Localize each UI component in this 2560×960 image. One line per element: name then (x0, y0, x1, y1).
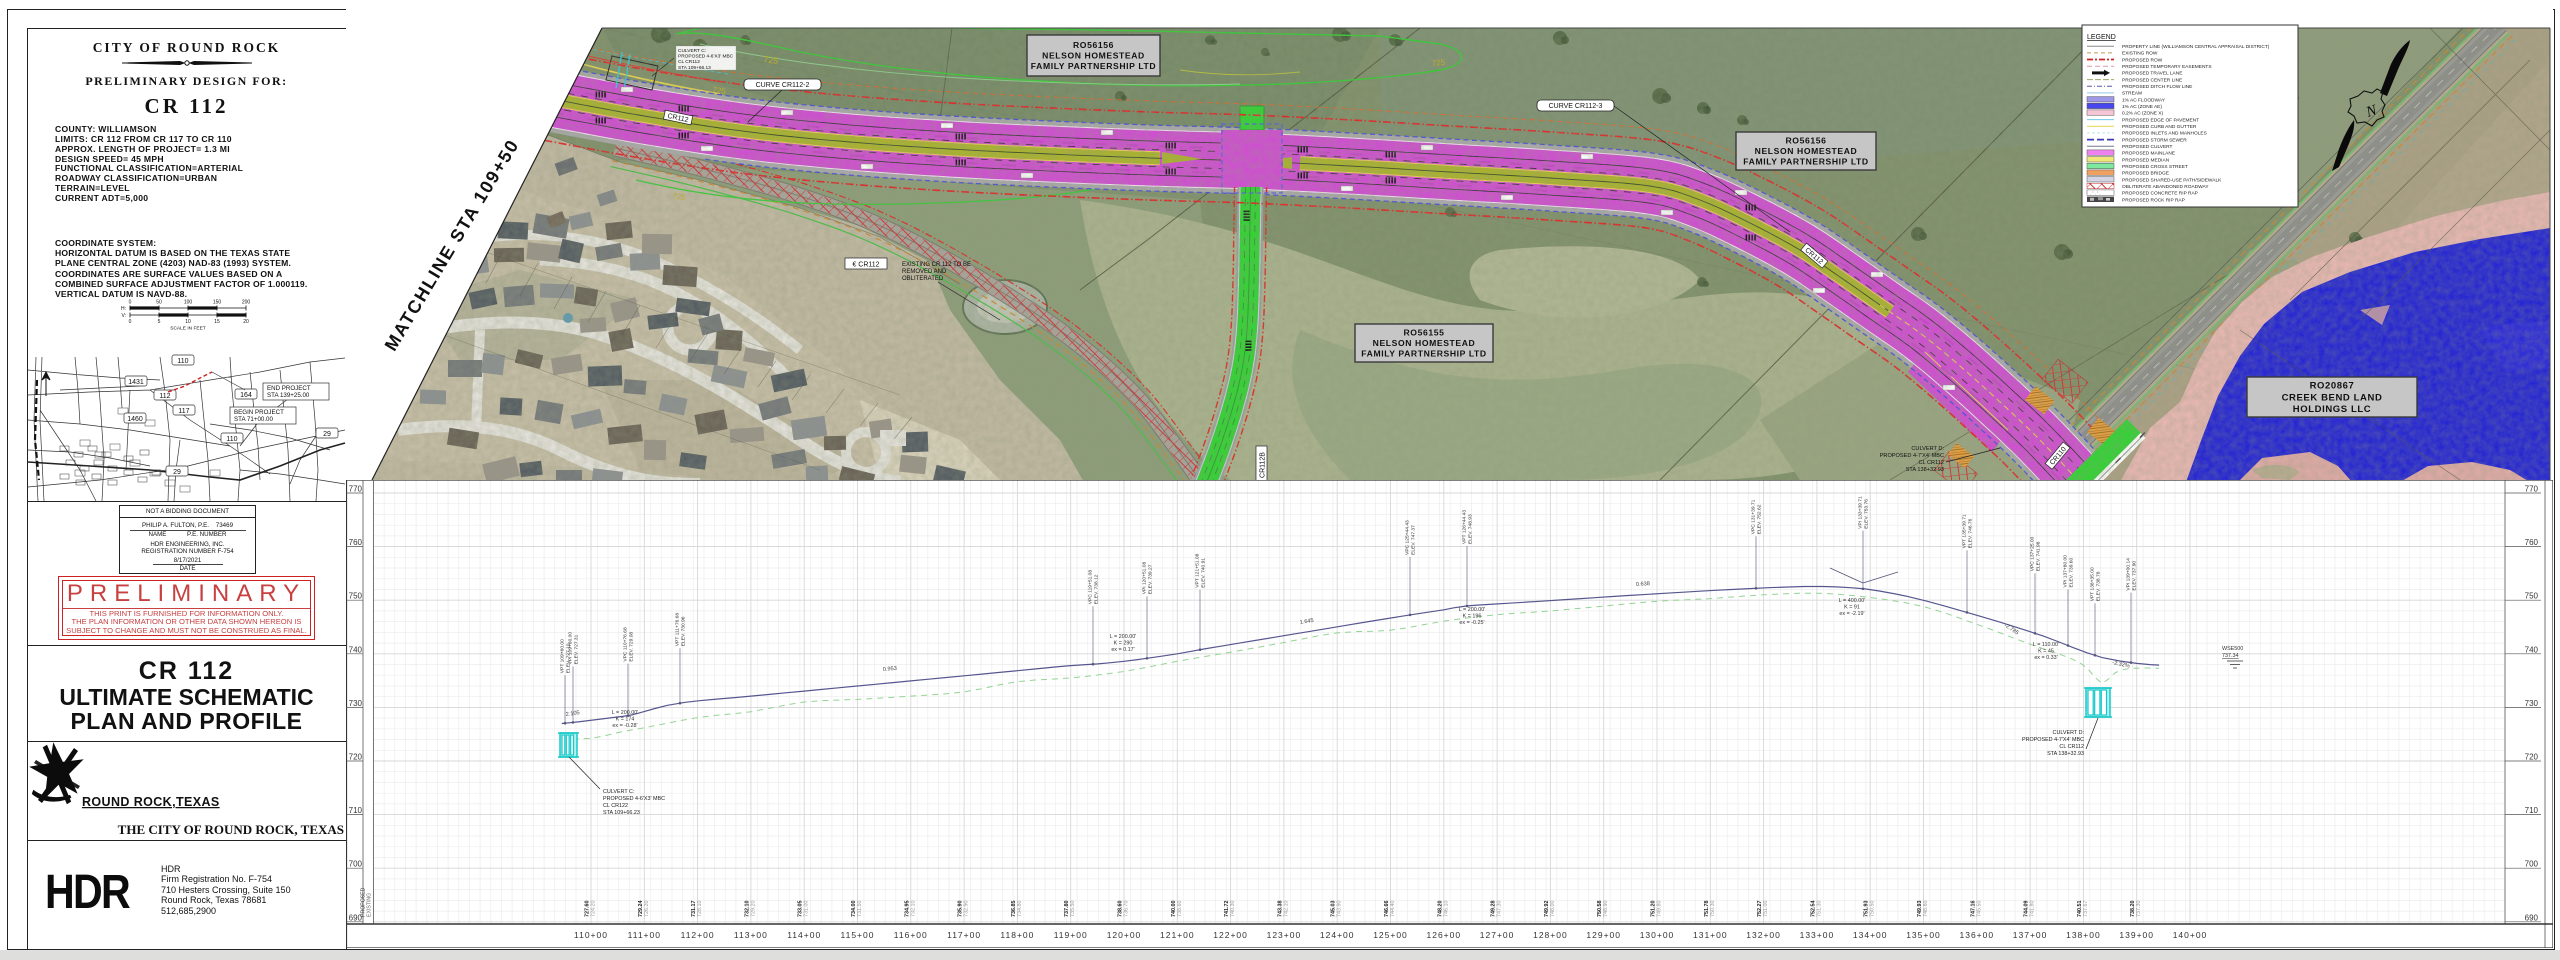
svg-text:720: 720 (2525, 753, 2539, 762)
svg-text:VPC 131+39.71: VPC 131+39.71 (1751, 499, 1757, 534)
svg-text:730: 730 (2525, 699, 2539, 708)
svg-text:VPC 137+25.00: VPC 137+25.00 (2030, 536, 2036, 571)
svg-text:124+00: 124+00 (1320, 930, 1355, 940)
svg-text:K = 174: K = 174 (616, 717, 635, 723)
svg-text:NELSON HOMESTEAD: NELSON HOMESTEAD (1755, 146, 1858, 156)
svg-text:. ˚ . ˚ .: . ˚ . ˚ . (2090, 190, 2100, 195)
svg-text:138+00: 138+00 (2066, 930, 2101, 940)
svg-text:740: 740 (2525, 645, 2539, 654)
svg-text:RO20867: RO20867 (2310, 381, 2355, 392)
svg-text:114+00: 114+00 (787, 930, 821, 940)
svg-text:741.80: 741.80 (2030, 901, 2036, 918)
svg-text:CL CR112: CL CR112 (2059, 744, 2084, 750)
svg-text:737.34: 737.34 (2222, 653, 2239, 659)
svg-text:ELEV. 740.91: ELEV. 740.91 (1200, 558, 1206, 588)
svg-text:VPT 111+76.68: VPT 111+76.68 (675, 613, 681, 647)
svg-text:EXISTING CR 112 TO BE: EXISTING CR 112 TO BE (902, 262, 971, 268)
svg-text:140+00: 140+00 (2173, 930, 2208, 940)
svg-text:746.10: 746.10 (1443, 901, 1449, 918)
svg-text:K = 91: K = 91 (1844, 605, 1860, 611)
svg-text:PROPOSED TRAVEL LANE: PROPOSED TRAVEL LANE (2122, 71, 2182, 77)
svg-text:ex = 0.17': ex = 0.17' (1111, 647, 1134, 653)
svg-text:RO56156: RO56156 (1786, 135, 1827, 145)
svg-text:740: 740 (349, 645, 363, 654)
svg-text:CREEK BEND LAND: CREEK BEND LAND (2282, 392, 2383, 403)
svg-text:VPI 109+80.00: VPI 109+80.00 (568, 632, 574, 665)
svg-text:ELEV. 738.78: ELEV. 738.78 (2095, 571, 2101, 601)
svg-text:730: 730 (349, 699, 363, 708)
svg-text:CURVE CR112-2: CURVE CR112-2 (756, 82, 810, 89)
svg-text:29: 29 (323, 431, 331, 438)
svg-text:PROPOSED EDGE OF PAVEMENT: PROPOSED EDGE OF PAVEMENT (2122, 117, 2199, 123)
svg-text:748.90: 748.90 (1603, 901, 1609, 918)
svg-text:119+00: 119+00 (1054, 930, 1088, 940)
svg-text:1% AC (ZONE AE): 1% AC (ZONE AE) (2122, 104, 2162, 110)
svg-text:720: 720 (349, 753, 363, 762)
svg-text:131+00: 131+00 (1693, 930, 1728, 940)
svg-text:END PROJECT: END PROJECT (267, 385, 311, 392)
svg-text:760: 760 (2525, 538, 2539, 547)
svg-text:117: 117 (178, 408, 189, 415)
svg-text:VPI 120+51.08: VPI 120+51.08 (1142, 562, 1148, 595)
svg-text:734.80: 734.80 (1017, 901, 1023, 918)
svg-text:VPT 135+39.71: VPT 135+39.71 (1962, 514, 1968, 548)
svg-text:PROPOSED CROSS STREET: PROPOSED CROSS STREET (2122, 164, 2188, 170)
svg-text:VPT 126+44.43: VPT 126+44.43 (1462, 510, 1468, 544)
svg-text:PROPOSED CENTER LINE: PROPOSED CENTER LINE (2122, 77, 2182, 83)
svg-text:120+00: 120+00 (1107, 930, 1142, 940)
svg-text:118+00: 118+00 (1000, 930, 1034, 940)
svg-text:700: 700 (2525, 860, 2539, 869)
svg-text:CR112B: CR112B (1260, 452, 1267, 478)
svg-text:ELEV. 746.76: ELEV. 746.76 (1967, 518, 1973, 548)
svg-text:123+00: 123+00 (1267, 930, 1302, 940)
svg-text:ELEV. 739.27: ELEV. 739.27 (1147, 564, 1153, 594)
svg-text:29: 29 (173, 469, 181, 476)
svg-text:750: 750 (349, 592, 363, 601)
svg-text:735.50: 735.50 (1070, 901, 1076, 918)
svg-text:127+00: 127+00 (1480, 930, 1515, 940)
svg-text:117+00: 117+00 (947, 930, 981, 940)
svg-text:REMOVED AND: REMOVED AND (902, 269, 947, 275)
svg-text:ex = 0.33': ex = 0.33' (2034, 655, 2057, 661)
svg-text:FAMILY PARTNERSHIP LTD: FAMILY PARTNERSHIP LTD (1031, 61, 1156, 71)
svg-text:731.00: 731.00 (804, 901, 810, 918)
svg-text:134+00: 134+00 (1853, 930, 1888, 940)
svg-text:100: 100 (184, 300, 193, 306)
svg-text:110: 110 (177, 358, 188, 365)
svg-text:STA 138+32.93: STA 138+32.93 (1906, 467, 1944, 473)
svg-text:133+00: 133+00 (1800, 930, 1835, 940)
svg-text:164: 164 (240, 392, 252, 399)
svg-text:ELEV. 748.93: ELEV. 748.93 (1467, 514, 1473, 544)
svg-text:VPT 121+51.08: VPT 121+51.08 (1195, 553, 1201, 587)
svg-text:751.30: 751.30 (1816, 901, 1822, 918)
svg-text:PROPOSED BRIDGE: PROPOSED BRIDGE (2122, 171, 2169, 177)
svg-text:CL CR112: CL CR112 (1919, 460, 1945, 466)
svg-text:STA 71+00.00: STA 71+00.00 (234, 416, 273, 423)
svg-text:750.30: 750.30 (1710, 901, 1716, 918)
svg-text:HOLDINGS LLC: HOLDINGS LLC (2293, 404, 2371, 415)
svg-text:PROPOSED CULVERT: PROPOSED CULVERT (2122, 144, 2173, 150)
svg-text:PROPOSED MAINLANE: PROPOSED MAINLANE (2122, 151, 2175, 157)
svg-text:PROPOSED SHARED-USE PATH/SIDEW: PROPOSED SHARED-USE PATH/SIDEWALK (2122, 177, 2222, 183)
svg-text:740.30: 740.30 (1230, 901, 1236, 918)
svg-text:0: 0 (129, 300, 132, 306)
svg-text:CURVE CR112-3: CURVE CR112-3 (1549, 103, 1603, 110)
svg-text:L = 110.00': L = 110.00' (2033, 642, 2059, 648)
svg-text:0.953: 0.953 (883, 666, 897, 673)
svg-text:744.40: 744.40 (1390, 901, 1396, 918)
svg-text:743.90: 743.90 (1337, 901, 1343, 918)
svg-text:PROPERTY LINE (WILLIAMSON CENT: PROPERTY LINE (WILLIAMSON CENTRAL APPRAI… (2122, 44, 2270, 50)
svg-text:112+00: 112+00 (681, 930, 715, 940)
svg-text:132+00: 132+00 (1746, 930, 1781, 940)
svg-text:L = 200.00': L = 200.00' (612, 710, 638, 716)
svg-text:20: 20 (243, 319, 249, 325)
svg-text:€ CR112: € CR112 (852, 262, 879, 269)
svg-text:PROPOSED INLETS AND MANHOLES: PROPOSED INLETS AND MANHOLES (2122, 131, 2207, 137)
svg-text:L = 200.00': L = 200.00' (1459, 607, 1485, 613)
svg-text:751.00: 751.00 (1763, 901, 1769, 918)
svg-text:CULVERT C:: CULVERT C: (678, 48, 706, 54)
svg-text:SCALE IN FEET: SCALE IN FEET (170, 326, 206, 332)
svg-text:1% AC FLOODWAY: 1% AC FLOODWAY (2122, 97, 2166, 103)
svg-text:121+00: 121+00 (1160, 930, 1195, 940)
svg-text:PROPOSED 4-6'X3' MBC: PROPOSED 4-6'X3' MBC (603, 796, 665, 802)
svg-text:VPC 119+51.08: VPC 119+51.08 (1088, 570, 1094, 605)
svg-text:750: 750 (2525, 592, 2539, 601)
svg-text:ELEV. 752.62: ELEV. 752.62 (1756, 504, 1762, 534)
svg-text:PROPOSED TEMPORARY EASEMENTS: PROPOSED TEMPORARY EASEMENTS (2122, 64, 2212, 70)
svg-text:749.80: 749.80 (1657, 901, 1663, 918)
svg-text:ELEV. 737.90: ELEV. 737.90 (2131, 561, 2137, 591)
svg-text:0.2% AC (ZONE X): 0.2% AC (ZONE X) (2122, 111, 2163, 117)
svg-text:PROPOSED DITCH FLOW LINE: PROPOSED DITCH FLOW LINE (2122, 84, 2192, 90)
svg-text:710: 710 (2525, 806, 2539, 815)
svg-text:RO56155: RO56155 (1404, 327, 1445, 337)
svg-text:ELEV. 730.96: ELEV. 730.96 (680, 616, 686, 646)
svg-text:736.70: 736.70 (1124, 901, 1130, 918)
svg-text:STA 109+66.13: STA 109+66.13 (678, 65, 711, 71)
svg-text:200: 200 (242, 300, 251, 306)
svg-text:748.00: 748.00 (1550, 901, 1556, 918)
svg-text:50: 50 (156, 300, 162, 306)
svg-text:738.60: 738.60 (1177, 901, 1183, 918)
svg-text:732.10: 732.10 (910, 901, 916, 918)
svg-text:760: 760 (349, 538, 363, 547)
svg-text:113+00: 113+00 (734, 930, 768, 940)
svg-text:CULVERT C:: CULVERT C: (603, 789, 634, 795)
svg-text:690: 690 (2525, 913, 2539, 922)
svg-text:STA 139+25.00: STA 139+25.00 (267, 392, 310, 399)
svg-text:1431: 1431 (128, 379, 144, 386)
svg-text:PROPOSED STORM SEWER: PROPOSED STORM SEWER (2122, 137, 2187, 143)
svg-text:L = 200.00': L = 200.00' (1110, 634, 1136, 640)
svg-text:STREAM: STREAM (2122, 91, 2142, 97)
svg-text:L = 400.00': L = 400.00' (1839, 598, 1865, 604)
svg-text:737.67: 737.67 (2083, 901, 2089, 918)
svg-text:135+00: 135+00 (1906, 930, 1941, 940)
svg-text:700: 700 (349, 860, 363, 869)
svg-text:5: 5 (158, 319, 161, 325)
svg-text:CULVERT D:: CULVERT D: (2053, 730, 2084, 736)
svg-text:750.50: 750.50 (1870, 901, 1876, 918)
svg-text:VPI 139+00.14: VPI 139+00.14 (2126, 558, 2132, 591)
svg-text:CL CR122: CL CR122 (603, 803, 628, 809)
svg-text:VPT 138+35.00: VPT 138+35.00 (2090, 567, 2096, 601)
svg-text:BEGIN PROJECT: BEGIN PROJECT (234, 409, 284, 416)
svg-text:LEGEND: LEGEND (2087, 34, 2116, 41)
svg-text:770: 770 (349, 485, 363, 494)
svg-text:122+00: 122+00 (1213, 930, 1248, 940)
svg-text:EXISTING ROW: EXISTING ROW (2122, 51, 2158, 57)
svg-text:130+00: 130+00 (1640, 930, 1675, 940)
svg-text:126+00: 126+00 (1426, 930, 1461, 940)
svg-text:128+00: 128+00 (1533, 930, 1568, 940)
svg-text:ELEV. 741.98: ELEV. 741.98 (2035, 541, 2041, 571)
svg-text:PROPOSED MEDIAN: PROPOSED MEDIAN (2122, 157, 2170, 163)
svg-text:110: 110 (226, 436, 237, 443)
svg-text:PROPOSED CURB AND GUTTER: PROPOSED CURB AND GUTTER (2122, 124, 2197, 130)
svg-text:115+00: 115+00 (841, 930, 875, 940)
svg-text:129+00: 129+00 (1586, 930, 1621, 940)
svg-text:0: 0 (129, 319, 132, 325)
svg-text:ELEV. 727.31: ELEV. 727.31 (573, 634, 579, 664)
svg-text:ELEV. 729.08: ELEV. 729.08 (628, 632, 634, 662)
svg-text:1460: 1460 (127, 416, 143, 423)
svg-text:OBLITERATE ABANDONED ROADWAY: OBLITERATE ABANDONED ROADWAY (2122, 184, 2209, 190)
svg-text:K = 45: K = 45 (2038, 649, 2054, 655)
svg-text:726.20: 726.20 (644, 901, 650, 918)
svg-text:FAMILY PARTNERSHIP LTD: FAMILY PARTNERSHIP LTD (1361, 349, 1486, 359)
svg-text:ex = -0.25': ex = -0.25' (1459, 620, 1484, 626)
svg-text:732.90: 732.90 (964, 901, 970, 918)
svg-text:729.20: 729.20 (750, 901, 756, 918)
svg-text:STA 138+32.93: STA 138+32.93 (2047, 751, 2084, 757)
svg-text:731.50: 731.50 (857, 901, 863, 918)
svg-text:STA 109+66.23: STA 109+66.23 (603, 810, 640, 816)
svg-text:ELEV. 753.76: ELEV. 753.76 (1863, 499, 1869, 529)
svg-text:NELSON HOMESTEAD: NELSON HOMESTEAD (1042, 51, 1145, 61)
svg-text:CULVERT D:: CULVERT D: (1911, 446, 1944, 452)
svg-text:139+00: 139+00 (2119, 930, 2154, 940)
svg-text:RO56156: RO56156 (1073, 40, 1114, 50)
svg-text:ex = -0.28': ex = -0.28' (612, 723, 637, 729)
svg-text:EXISTING: EXISTING (367, 893, 373, 917)
svg-text:748.80: 748.80 (1923, 901, 1929, 918)
svg-text:K = 290: K = 290 (1114, 641, 1133, 647)
svg-text:PROPOSED 4-7'X4' MBC: PROPOSED 4-7'X4' MBC (2022, 737, 2084, 743)
svg-text:112: 112 (159, 393, 170, 400)
svg-text:PROPOSED ROW: PROPOSED ROW (2122, 57, 2163, 63)
svg-text:K = 196: K = 196 (1463, 614, 1482, 620)
svg-text:PROPOSED CONCRETE RIP RAP: PROPOSED CONCRETE RIP RAP (2122, 191, 2198, 197)
svg-text:0.638: 0.638 (1636, 581, 1650, 588)
svg-text:728.10: 728.10 (697, 901, 703, 918)
svg-text:110+00: 110+00 (574, 930, 608, 940)
svg-text:ROUND ROCK,TEXAS: ROUND ROCK,TEXAS (82, 795, 220, 809)
svg-text:PROPOSED 4-6'X3' MBC: PROPOSED 4-6'X3' MBC (678, 54, 734, 60)
svg-text:10: 10 (185, 319, 191, 325)
svg-text:710: 710 (349, 806, 363, 815)
svg-text:VPC 125+44.43: VPC 125+44.43 (1405, 520, 1411, 555)
svg-text:116+00: 116+00 (894, 930, 928, 940)
svg-text:CL CR112: CL CR112 (678, 59, 700, 65)
svg-text:PROPOSED 4-7'X4' MBC: PROPOSED 4-7'X4' MBC (1880, 453, 1944, 459)
svg-text:HDR: HDR (45, 866, 130, 919)
svg-text:ex = -2.19': ex = -2.19' (1839, 611, 1864, 617)
svg-text:137+00: 137+00 (2013, 930, 2048, 940)
svg-text:PROPOSED ROCK RIP RAP: PROPOSED ROCK RIP RAP (2122, 197, 2185, 203)
svg-text:737.30: 737.30 (2136, 901, 2142, 918)
svg-text:NELSON HOMESTEAD: NELSON HOMESTEAD (1373, 338, 1476, 348)
svg-text:111+00: 111+00 (628, 930, 661, 940)
svg-text:ELEV. 747.37: ELEV. 747.37 (1410, 525, 1416, 555)
svg-text:FAMILY PARTNERSHIP LTD: FAMILY PARTNERSHIP LTD (1743, 157, 1868, 167)
svg-text:WSE500: WSE500 (2222, 646, 2243, 652)
svg-text:OBLITERATED: OBLITERATED (902, 276, 944, 282)
svg-text:724.20: 724.20 (591, 901, 597, 918)
svg-text:VPT 109+60.00: VPT 109+60.00 (560, 639, 566, 673)
svg-text:V:: V: (121, 313, 126, 319)
svg-text:747.30: 747.30 (1497, 901, 1503, 918)
svg-text:745.50: 745.50 (1976, 901, 1982, 918)
svg-text:H:: H: (121, 306, 126, 312)
svg-text:VPI 133+39.71: VPI 133+39.71 (1858, 496, 1864, 529)
svg-text:VPI 137+80.00: VPI 137+80.00 (2063, 555, 2069, 588)
svg-text:770: 770 (2525, 485, 2539, 494)
svg-text:742.10: 742.10 (1283, 901, 1289, 918)
svg-text:150: 150 (213, 300, 222, 306)
svg-text:136+00: 136+00 (1959, 930, 1994, 940)
svg-text:ELEV. 738.12: ELEV. 738.12 (1093, 574, 1099, 604)
svg-text:125+00: 125+00 (1373, 930, 1408, 940)
svg-text:ELEV. 739.60: ELEV. 739.60 (2068, 557, 2074, 587)
svg-text:15: 15 (214, 319, 220, 325)
svg-text:VPC 110+76.68: VPC 110+76.68 (623, 627, 629, 662)
